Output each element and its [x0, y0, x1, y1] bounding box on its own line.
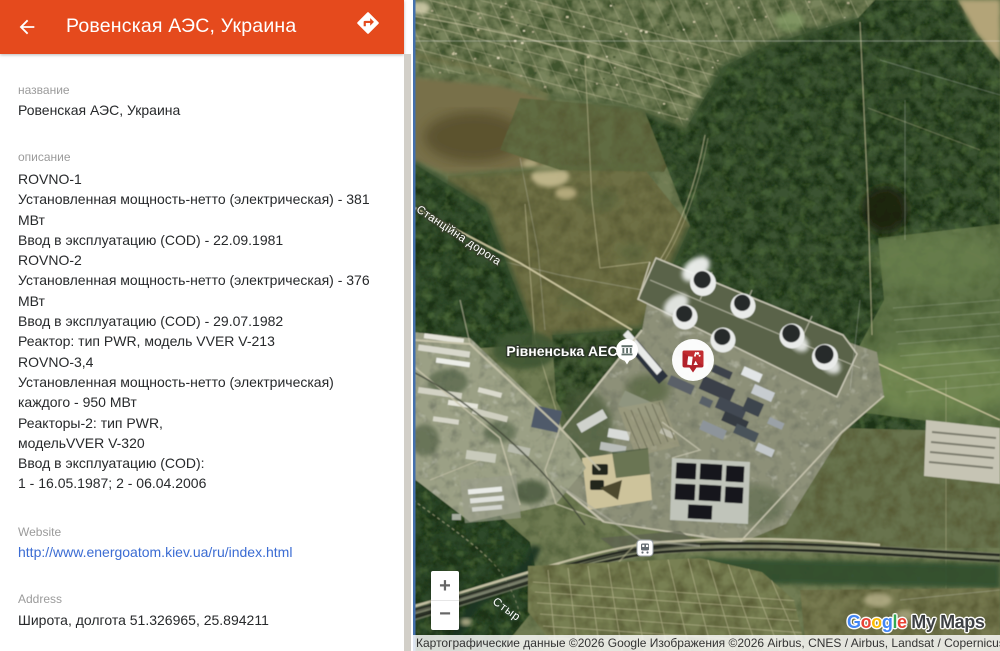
- svg-text:Рівненська АЕС: Рівненська АЕС: [506, 343, 617, 359]
